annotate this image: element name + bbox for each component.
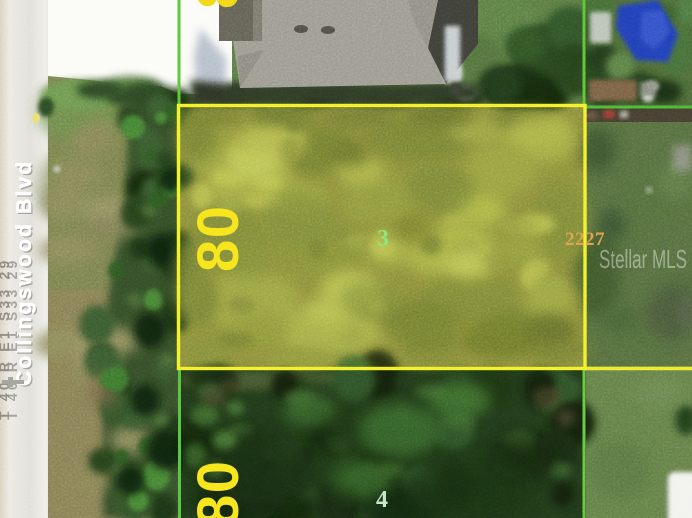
svg-text:80: 80 <box>186 0 251 9</box>
svg-text:Stellar MLS: Stellar MLS <box>599 244 687 274</box>
svg-text:4: 4 <box>376 487 388 513</box>
svg-text:T 40 R E1 S33 29: T 40 R E1 S33 29 <box>4 258 20 421</box>
svg-text:80: 80 <box>186 204 251 272</box>
svg-text:80: 80 <box>186 459 251 518</box>
svg-text:3: 3 <box>377 226 389 252</box>
